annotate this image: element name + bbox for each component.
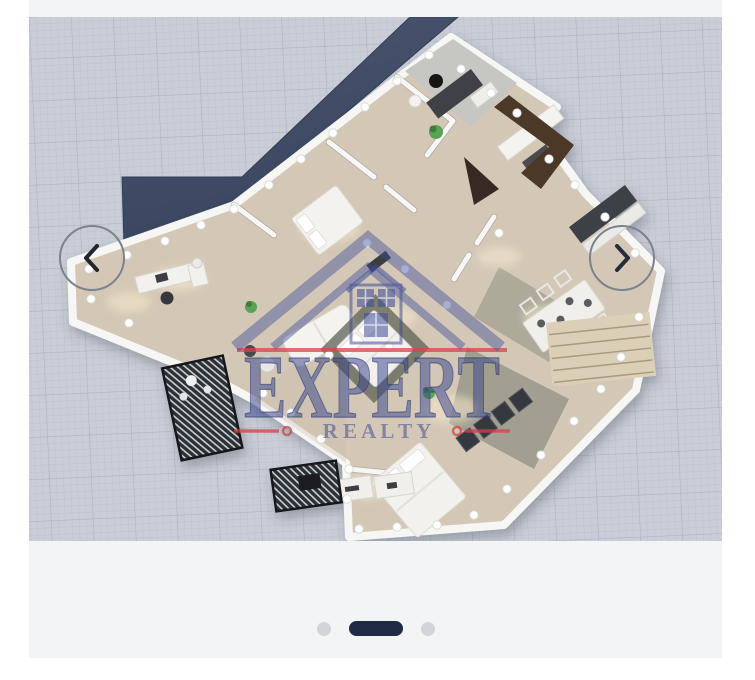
pagination — [29, 621, 722, 636]
carousel-prev-button[interactable] — [59, 225, 125, 291]
carousel-footer — [29, 541, 722, 658]
photo-carousel-card: EXPERT R E A L T Y — [29, 0, 722, 658]
carousel-next-button[interactable] — [589, 225, 655, 291]
pagination-dot-2-active[interactable] — [349, 621, 403, 636]
chevron-right-icon — [608, 241, 636, 275]
listing-photo: EXPERT R E A L T Y — [29, 17, 722, 541]
watermark-subtitle: R E A L T Y — [323, 419, 432, 443]
stairs — [546, 312, 656, 387]
balcony-bottom — [271, 461, 342, 512]
pagination-dot-3[interactable] — [421, 622, 435, 636]
chevron-left-icon — [78, 241, 106, 275]
pagination-dot-1[interactable] — [317, 622, 331, 636]
